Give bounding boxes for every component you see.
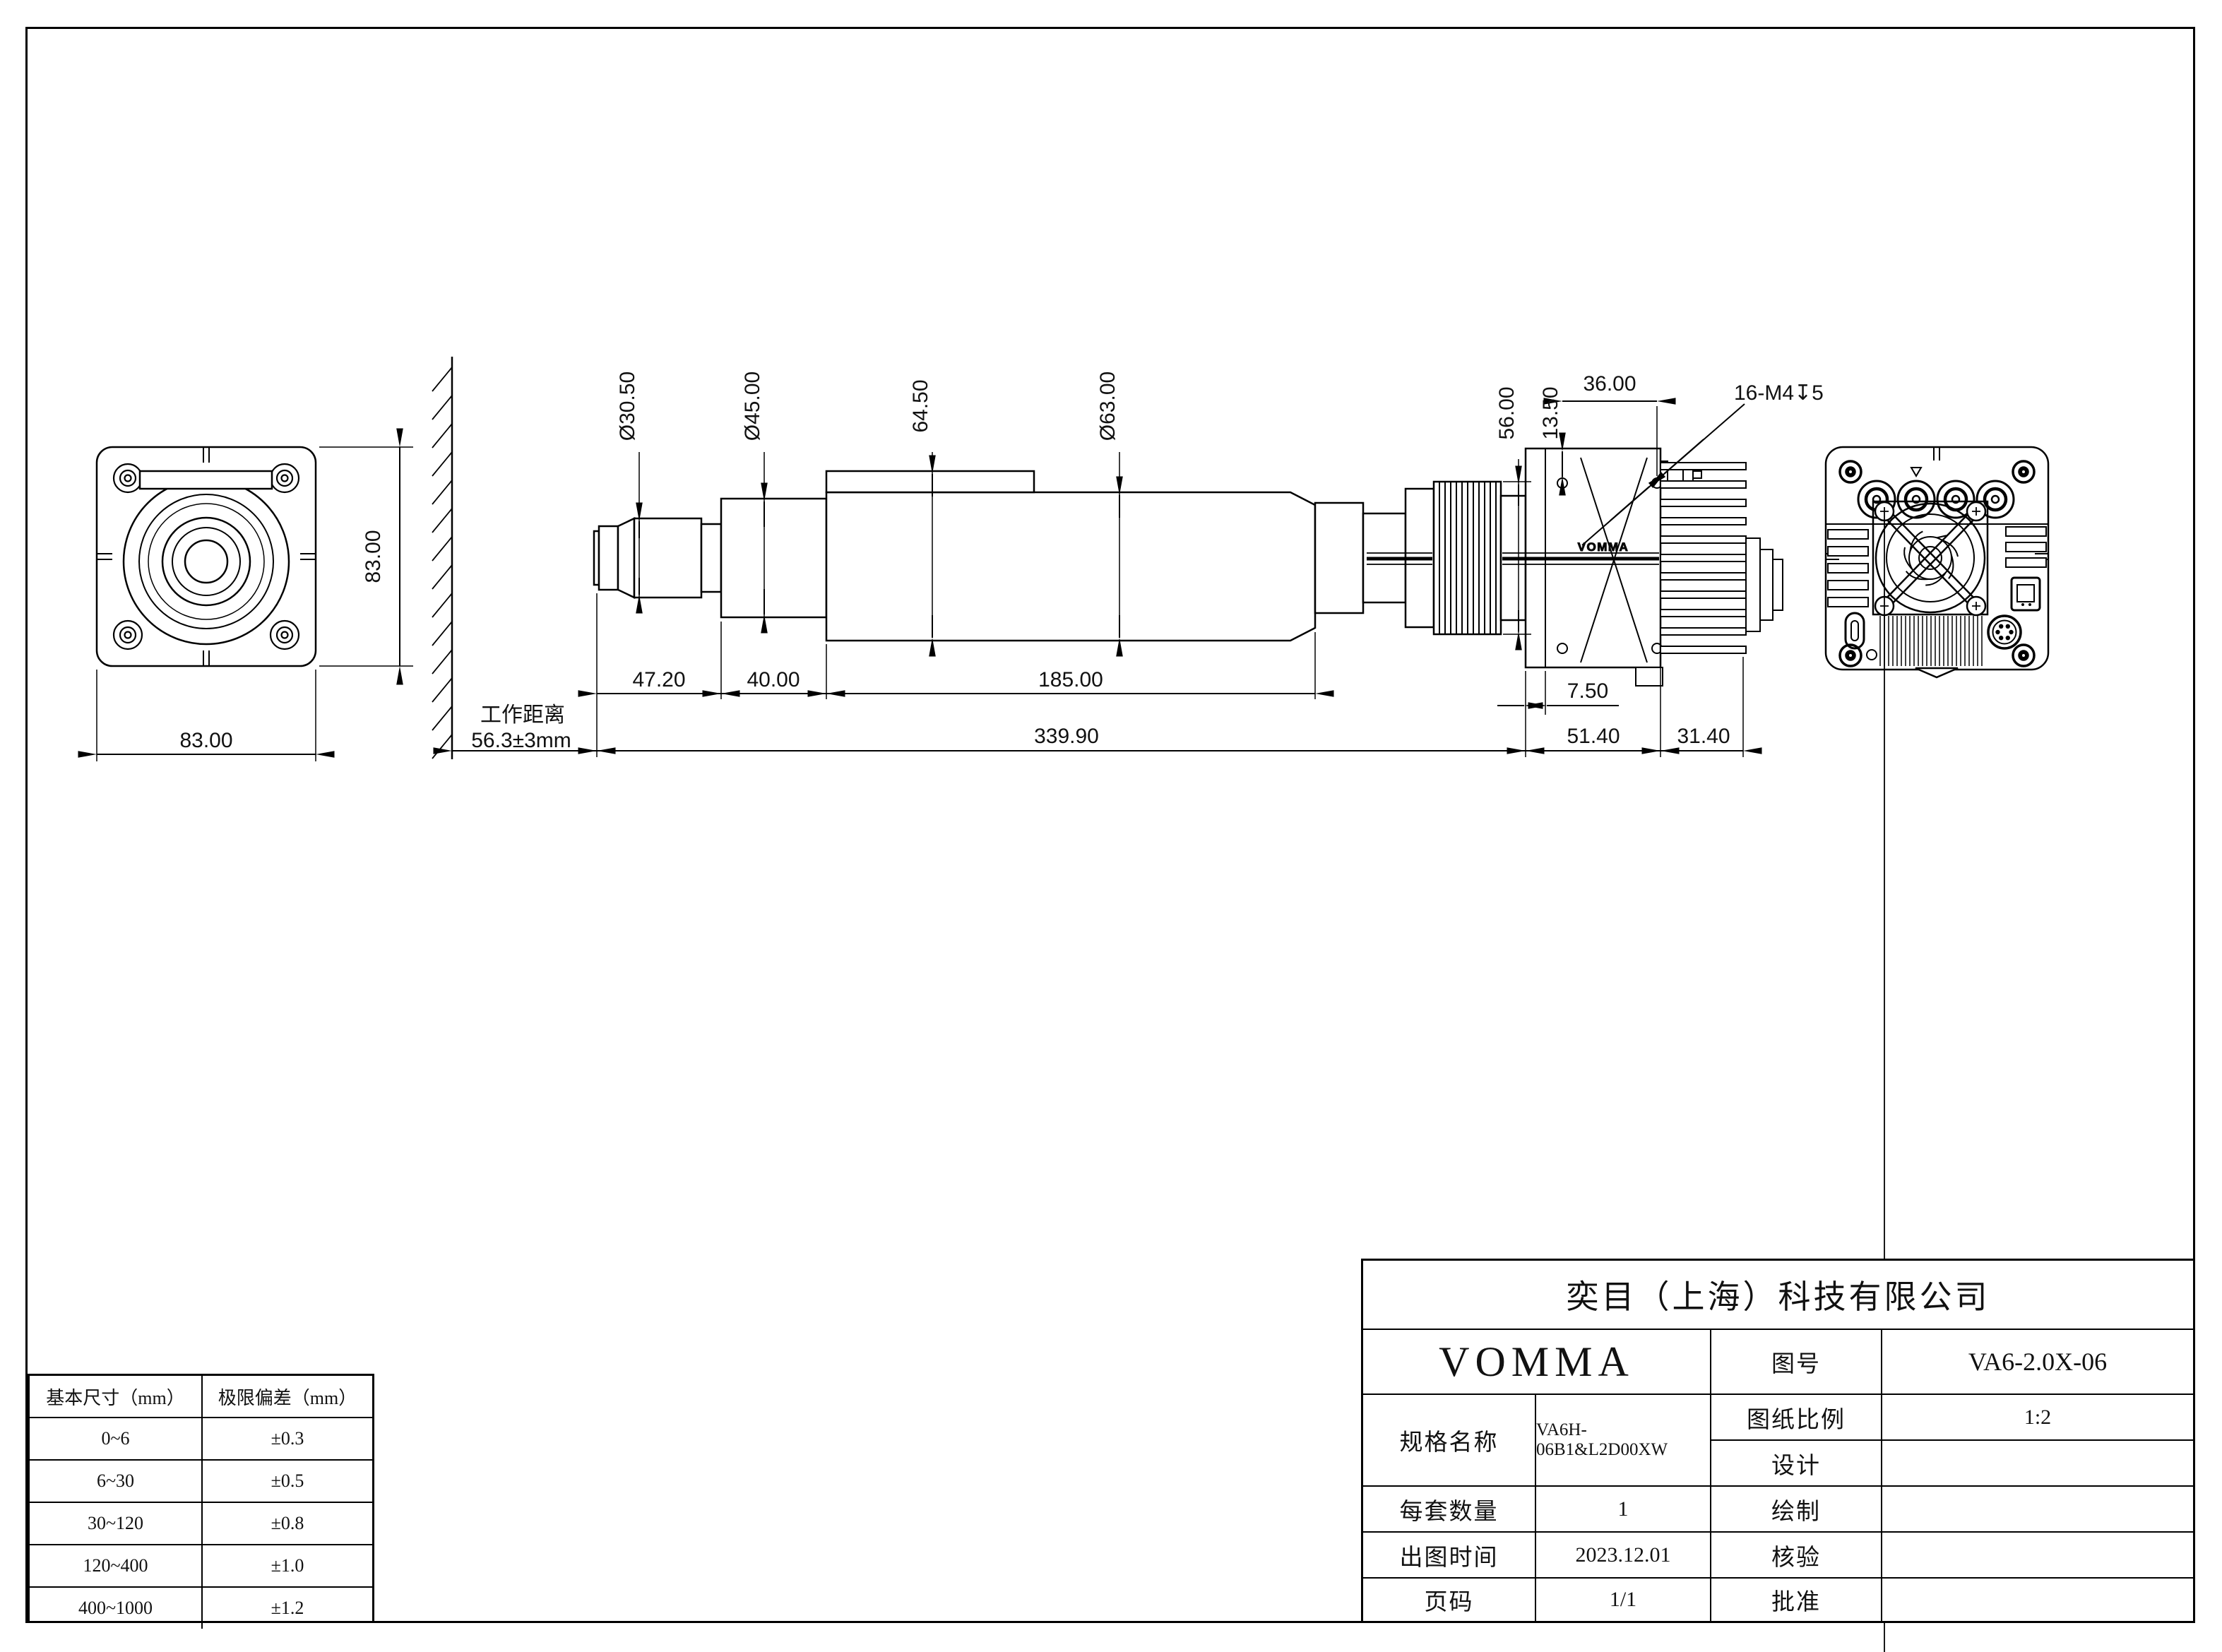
lens-tube-45: [721, 499, 826, 617]
front-lens-circles: [124, 479, 289, 644]
front-height-dim: 83.00: [362, 530, 385, 583]
approve-label: 批准: [1711, 1579, 1882, 1621]
dim-51-40: 51.40: [1567, 725, 1620, 748]
drawing-sheet: 83.00 83.00: [0, 0, 2222, 1652]
front-width-dim: 83.00: [179, 729, 232, 752]
body-logo: VOMMA: [1578, 540, 1629, 554]
tolerance-table: 基本尺寸（mm） 极限偏差（mm） 0~6 ±0.3 6~30 ±0.5 30~…: [28, 1374, 374, 1623]
qty-label: 每套数量: [1363, 1487, 1536, 1533]
rear-connector-stub: [1746, 538, 1783, 631]
front-view: 83.00 83.00: [97, 447, 413, 761]
dim-339-90: 339.90: [1034, 725, 1099, 748]
work-surface-hatching: [432, 357, 452, 759]
spec-label: 规格名称: [1363, 1395, 1536, 1487]
date-label: 出图时间: [1363, 1533, 1536, 1579]
tolerance-row: 120~400 ±1.0: [30, 1545, 372, 1588]
dim-dia-63-00: Ø63.00: [1096, 372, 1119, 441]
working-distance-value: 56.3±3mm: [471, 729, 571, 752]
dim-dia-30-50: Ø30.50: [616, 372, 639, 441]
check-value: [1882, 1533, 2193, 1579]
dim-64-50: 64.50: [909, 379, 932, 432]
side-view: Ø30.50 Ø45.00 64.50 Ø63.00 56.00 13.50 3…: [432, 357, 1824, 759]
tolerance-header-basic: 基本尺寸（mm）: [30, 1376, 203, 1417]
dim-47-20: 47.20: [632, 668, 685, 691]
page-value: 1/1: [1536, 1579, 1711, 1621]
check-label: 核验: [1711, 1533, 1882, 1579]
scale-label: 图纸比例: [1711, 1395, 1882, 1441]
tolerance-row: 0~6 ±0.3: [30, 1418, 372, 1461]
qty-value: 1: [1536, 1487, 1711, 1533]
drawing-no-value: VA6-2.0X-06: [1882, 1330, 2193, 1395]
brand-logo: VOMMA: [1363, 1330, 1711, 1395]
draft-label: 绘制: [1711, 1487, 1882, 1533]
date-value: 2023.12.01: [1536, 1533, 1711, 1579]
front-top-bar: [140, 471, 272, 489]
dim-31-40: 31.40: [1677, 725, 1730, 748]
barrel-front-band: [826, 471, 1034, 492]
heatsink-fins: [1660, 463, 1746, 653]
dim-40-00: 40.00: [747, 668, 800, 691]
rear-bottom-notch: [1915, 668, 1958, 677]
drawing-no-label: 图号: [1711, 1330, 1882, 1395]
scale-value: 1:2: [1882, 1395, 2193, 1441]
tolerance-header-deviation: 极限偏差（mm）: [203, 1376, 372, 1417]
draft-value: [1882, 1487, 2193, 1533]
main-barrel: [826, 492, 1315, 641]
tolerance-row: 6~30 ±0.5: [30, 1461, 372, 1503]
design-value: [1882, 1441, 2193, 1487]
company-name: 奕目（上海）科技有限公司: [1363, 1261, 2193, 1330]
dim-36-00: 36.00: [1583, 372, 1636, 396]
dim-185-00: 185.00: [1038, 668, 1103, 691]
dim-13-50: 13.50: [1539, 386, 1562, 439]
title-block: 奕目（上海）科技有限公司 VOMMA 图号 VA6-2.0X-06 规格名称 V…: [1361, 1259, 2195, 1623]
spec-value: VA6H-06B1&L2D00XW: [1536, 1395, 1711, 1487]
design-label: 设计: [1711, 1441, 1882, 1487]
dim-7-50: 7.50: [1567, 679, 1608, 703]
front-corner-screws: [114, 464, 299, 649]
tolerance-row: 30~120 ±0.8: [30, 1503, 372, 1545]
approve-value: [1882, 1579, 2193, 1621]
tolerance-row: 400~1000 ±1.2: [30, 1588, 372, 1629]
dim-dia-45-00: Ø45.00: [741, 372, 764, 441]
objective-lens: [594, 518, 721, 598]
page-label: 页码: [1363, 1579, 1536, 1621]
working-distance-label: 工作距离: [480, 703, 565, 727]
dim-56-00: 56.00: [1495, 386, 1519, 439]
thread-depth-note: 16-M4↧5: [1734, 381, 1824, 405]
body-foot: [1636, 667, 1663, 686]
tolerance-header-row: 基本尺寸（mm） 极限偏差（mm）: [30, 1376, 372, 1418]
